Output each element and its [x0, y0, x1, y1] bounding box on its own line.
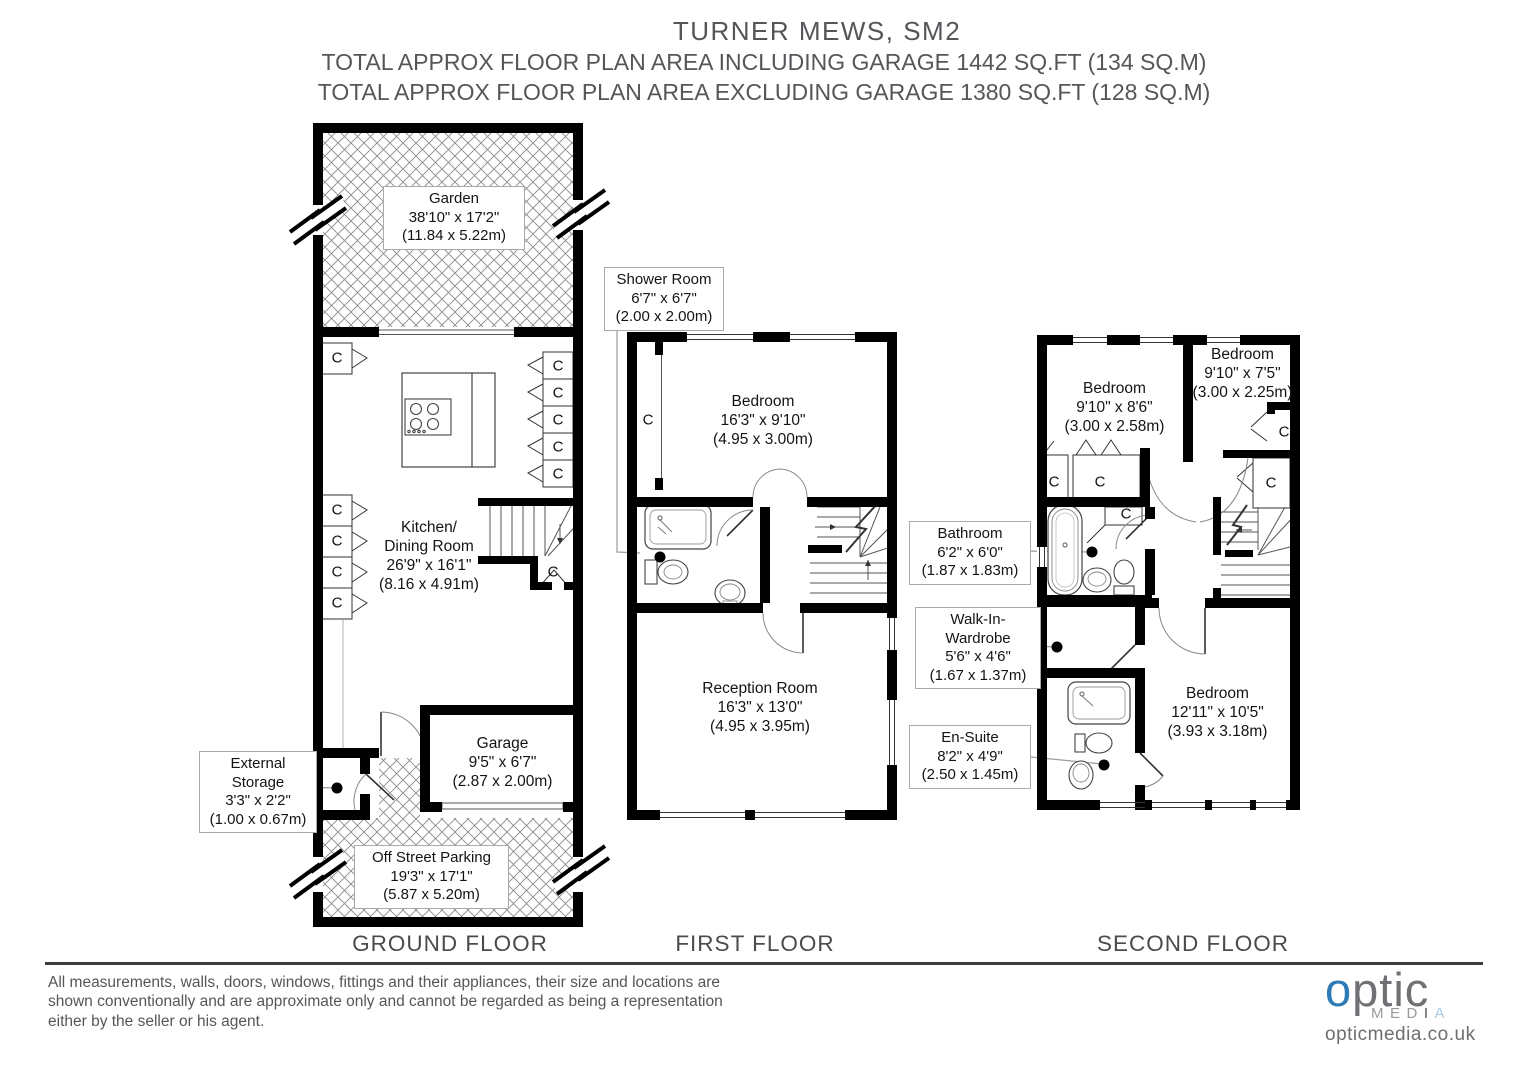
ground-floor-title: GROUND FLOOR [330, 931, 570, 957]
external-storage-label: ExternalStorage 3'3" x 2'2"(1.00 x 0.67m… [199, 751, 317, 833]
closet-label: C [553, 412, 564, 429]
closet-label: C [332, 533, 343, 550]
landing-tread-bar [808, 545, 842, 553]
logo-media-text: MEDIA [1371, 1005, 1505, 1022]
bedroom-double-door [753, 469, 807, 497]
closet-door-marks-right [528, 357, 543, 482]
wardrobe-dot [1052, 642, 1063, 653]
entry-door-arc [381, 712, 425, 756]
ensuite-dot [1099, 760, 1110, 771]
walk-in-wardrobe-label: Walk-In-Wardrobe 5'6" x 4'6"(1.67 x 1.37… [915, 607, 1041, 689]
shower-room-dot [655, 552, 666, 563]
toilet-icon-ensuite [1075, 733, 1112, 753]
parking-label: Off Street Parking19'3" x 17'1"(5.87 x 5… [354, 845, 509, 909]
en-suite-label: En-Suite8'2" x 4'9"(2.50 x 1.45m) [909, 725, 1031, 789]
first-floor-title: FIRST FLOOR [635, 931, 875, 957]
parking-hatch-strip [379, 758, 420, 818]
sink-icon-ensuite [1069, 761, 1093, 789]
kitchen-room-label: Kitchen/Dining Room 26'9" x 16'1"(8.16 x… [348, 518, 510, 594]
bathroom-dot [1087, 547, 1098, 558]
bedroom4-door-arc [1159, 608, 1205, 654]
floorplan-drawing [0, 0, 1528, 1080]
closet-label: C [332, 595, 343, 612]
sink-icon-first [715, 580, 745, 606]
garage-door [442, 803, 563, 809]
closet-label: C [1121, 506, 1132, 523]
closet-label: C [553, 439, 564, 456]
bedroom1-label: Bedroom16'3" x 9'10"(4.95 x 3.00m) [680, 392, 846, 449]
footer-divider [45, 962, 1483, 965]
closet-label: C [553, 466, 564, 483]
shower-door-arc [717, 510, 753, 546]
storage-dot [332, 783, 343, 794]
bathroom-label: Bathroom6'2" x 6'0"(1.87 x 1.83m) [909, 521, 1031, 585]
garden-door-lines [379, 330, 514, 335]
closet-label: C [332, 502, 343, 519]
bedroom4-label: Bedroom12'11" x 10'5"(3.93 x 3.18m) [1130, 684, 1305, 741]
shower-tray-icon-ensuite [1068, 682, 1130, 724]
closet-label: C [553, 385, 564, 402]
reception-room-label: Reception Room16'3" x 13'0"(4.95 x 3.95m… [672, 679, 848, 736]
toilet-icon-first [645, 560, 688, 584]
closet-label: C [1266, 475, 1277, 492]
disclaimer-text: All measurements, walls, doors, windows,… [48, 973, 723, 1031]
closet-label: C [332, 350, 343, 367]
garden-room-label: Garden38'10" x 17'2"(11.84 x 5.22m) [383, 186, 525, 250]
closet-label: C [643, 412, 654, 429]
shower-room-label: Shower Room6'7" x 6'7"(2.00 x 2.00m) [604, 267, 724, 331]
closet-label: C [548, 564, 559, 581]
bedroom3-label: Bedroom9'10" x 7'5"(3.00 x 2.25m) [1160, 345, 1325, 402]
ensuite-door-arc [1140, 753, 1163, 787]
closet-label: C [1095, 474, 1106, 491]
optic-media-logo: optic MEDIA opticmedia.co.uk [1325, 966, 1505, 1046]
sink-icon-bathroom [1083, 568, 1111, 592]
shower-tray-icon [645, 505, 711, 549]
reception-door-arc [763, 613, 803, 653]
closet-label: C [553, 358, 564, 375]
second-floor-title: SECOND FLOOR [1073, 931, 1313, 957]
garage-room-label: Garage9'5" x 6'7"(2.87 x 2.00m) [430, 734, 575, 791]
closet-label: C [332, 564, 343, 581]
floorplan-page: TURNER MEWS, SM2 TOTAL APPROX FLOOR PLAN… [0, 0, 1528, 1080]
left-wall-window-gap [1037, 547, 1047, 567]
logo-url: opticmedia.co.uk [1325, 1024, 1505, 1046]
closet-label: C [1049, 474, 1060, 491]
bath-icon [1048, 505, 1082, 595]
kitchen-island [402, 373, 495, 467]
toilet-icon-bathroom [1114, 560, 1134, 595]
closet-label: C [1279, 424, 1290, 441]
